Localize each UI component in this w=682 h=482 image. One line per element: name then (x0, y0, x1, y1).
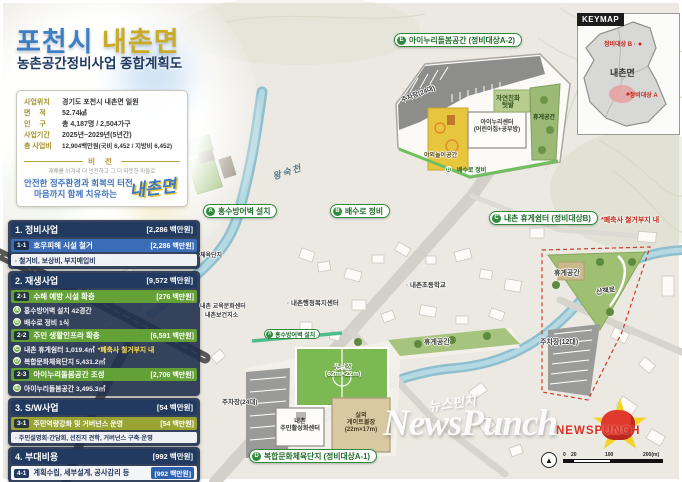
vision-divider: 비 전 (24, 156, 180, 167)
section-1-panel: 1. 정비사업 [2,286 백만원] 1-1 호우피해 시설 철거 [2,28… (8, 220, 200, 269)
section-4-panel: 4. 부대비용 [992 백만원] 4-1 계획수립, 세부설계, 공사감리 등… (8, 447, 200, 482)
futsal-field-label: 풋살장 (62m×22m) (314, 364, 372, 378)
info-row: 총 사업비12,904백만원(국비 6,452 / 지방비 6,452) (24, 141, 180, 152)
north-arrow: ▲ (541, 452, 557, 468)
detail-d: D 복합문화체육단지 5,431.2㎡ (11, 355, 197, 366)
elementary-school-label: · 내촌초등학교 (406, 279, 446, 289)
scale-0: 0 (563, 452, 566, 458)
detail-a: A 홍수방어벽 설치 42경간 (11, 304, 197, 315)
page-subtitle: 농촌공간정비사업 종합계획도 (17, 52, 182, 72)
childcare-garden-label: 자연친화 텃밭 (496, 95, 520, 109)
item-1-1-note: · 철거비, 보상비, 부지매입비 (11, 254, 197, 266)
project-info-box: 사업위치경기도 포천시 내촌면 일원 면 적52.74㎢ 인 구총 4,187명… (16, 90, 188, 207)
watermark-newspunch: NewsPunch (383, 402, 557, 445)
section-2-panel: 2. 재생사업 [9,572 백만원] 2-1 수해 예방 시설 확충 [276… (8, 271, 200, 396)
pill-rest-area: C 내촌 휴게쉼터 (정비대상B) (489, 211, 598, 225)
keymap-target-b: 정비대상 B · (604, 39, 636, 48)
info-row: 면 적52.74㎢ (24, 108, 180, 119)
edu-center-label: 내촌 교육문화센터 (200, 301, 246, 310)
info-row: 인 구총 4,187명 / 2,504가구 (24, 119, 180, 130)
detail-b: B 배수로 정비 1식 (11, 316, 197, 327)
gateball-court-label: 실외 게이트볼장 (22m×17m) (334, 412, 388, 433)
health-center-label: 내촌보건지소 (205, 310, 238, 319)
scale-bar: 0 20 100 200(m) (563, 452, 663, 463)
keymap-panel: KEYMAP 정비대상 B · 내촌면 · 정비대상 A (577, 13, 680, 135)
rest-area-parking-label: 주차장(12대) (540, 337, 578, 347)
plan-map-canvas: 포천시 내촌면 농촌공간정비사업 종합계획도 사업위치경기도 포천시 내촌면 일… (0, 0, 682, 482)
scale-bar-segments (563, 459, 663, 463)
childcare-center-label: 아이누리센터 (어린이집+공부방) (470, 120, 524, 134)
detail-e: E 아이누리돌봄공간 3,495.3㎡ (11, 382, 197, 393)
section-2-header: 2. 재생사업 [9,572 백만원] (11, 273, 197, 288)
section-3-panel: 3. S/W사업 [54 백만원] 3-1 주민역량강화 및 거버넌스 운영 [… (8, 398, 200, 446)
welfare-center-label: · 내촌행정복지센터 (287, 297, 339, 307)
sports-parking-label: 주차장(24대) (222, 396, 257, 406)
item-3-1-note: · 주민설명회·간담회, 선진지 견학, 거버넌스 구축·운영 (11, 432, 197, 443)
sports-flood-wall-minipill: A 홍수방어벽 설치 (264, 329, 320, 339)
sports-rest-label: 휴게공간 (424, 337, 450, 347)
detail-c: C 내촌 휴게쉼터 1,019.4㎡ *폐축사 철거부지 내 (11, 343, 197, 354)
pill-sports-complex: D 복합문화체육단지 (정비대상A-1) (249, 449, 377, 463)
community-center-label: 내촌 주민활성화센터 (274, 418, 326, 432)
pill-flood-wall: A 홍수방어벽 설치 (203, 204, 277, 218)
childcare-rest-label: 휴게공간 (533, 112, 555, 121)
scale-20: 20 (571, 452, 577, 458)
pill-childcare-space: E 아이누리돌봄공간 (정비대상A-2) (394, 33, 522, 47)
rest-area-red-note: *폐축사 철거부지 내 (601, 215, 659, 225)
vision-title: 비 전 (83, 156, 121, 167)
scale-100: 100 (605, 452, 613, 458)
item-2-3: 2-3 아이누리돌봄공간 조성 [2,706 백만원] (11, 368, 197, 381)
keymap-target-a: · 정비대상 A (626, 90, 658, 99)
section-1-header: 1. 정비사업 [2,286 백만원] (11, 222, 197, 237)
info-row: 사업기간2025년~2029년(5년간) (24, 130, 180, 141)
rest-area-rest-label: 휴게공간 (554, 268, 580, 278)
childcare-drain-label: B 배수로 정비 (445, 165, 486, 174)
item-4-1: 4-1 계획수립, 세부설계, 공사감리 등 [992 백만원] (11, 466, 197, 480)
item-3-1: 3-1 주민역량강화 및 거버넌스 운영 [54 백만원] (11, 417, 197, 430)
item-1-1: 1-1 호우피해 시설 철거 [2,286 백만원] (11, 239, 197, 252)
section-3-header: 3. S/W사업 [54 백만원] (11, 400, 197, 415)
sports-field-label: 체육단지 (200, 250, 222, 259)
item-2-1: 2-1 수해 예방 시설 확충 [276 백만원] (11, 290, 197, 303)
item-2-2: 2-2 주민 생활인프라 확충 [6,591 백만원] (11, 329, 197, 342)
keymap-myeon-label: 내촌면 (610, 66, 635, 79)
watermark-newspunch-red: NEWSPUNCH (556, 425, 640, 437)
info-row: 사업위치경기도 포천시 내촌면 일원 (24, 97, 180, 108)
pill-drainage: B 배수로 정비 (330, 204, 390, 218)
scale-200: 200(m) (643, 452, 659, 458)
section-4-header: 4. 부대비용 [992 백만원] (11, 449, 197, 464)
keymap-title: KEYMAP (577, 13, 624, 26)
childcare-play-label: 야외놀이공간 (424, 150, 457, 159)
